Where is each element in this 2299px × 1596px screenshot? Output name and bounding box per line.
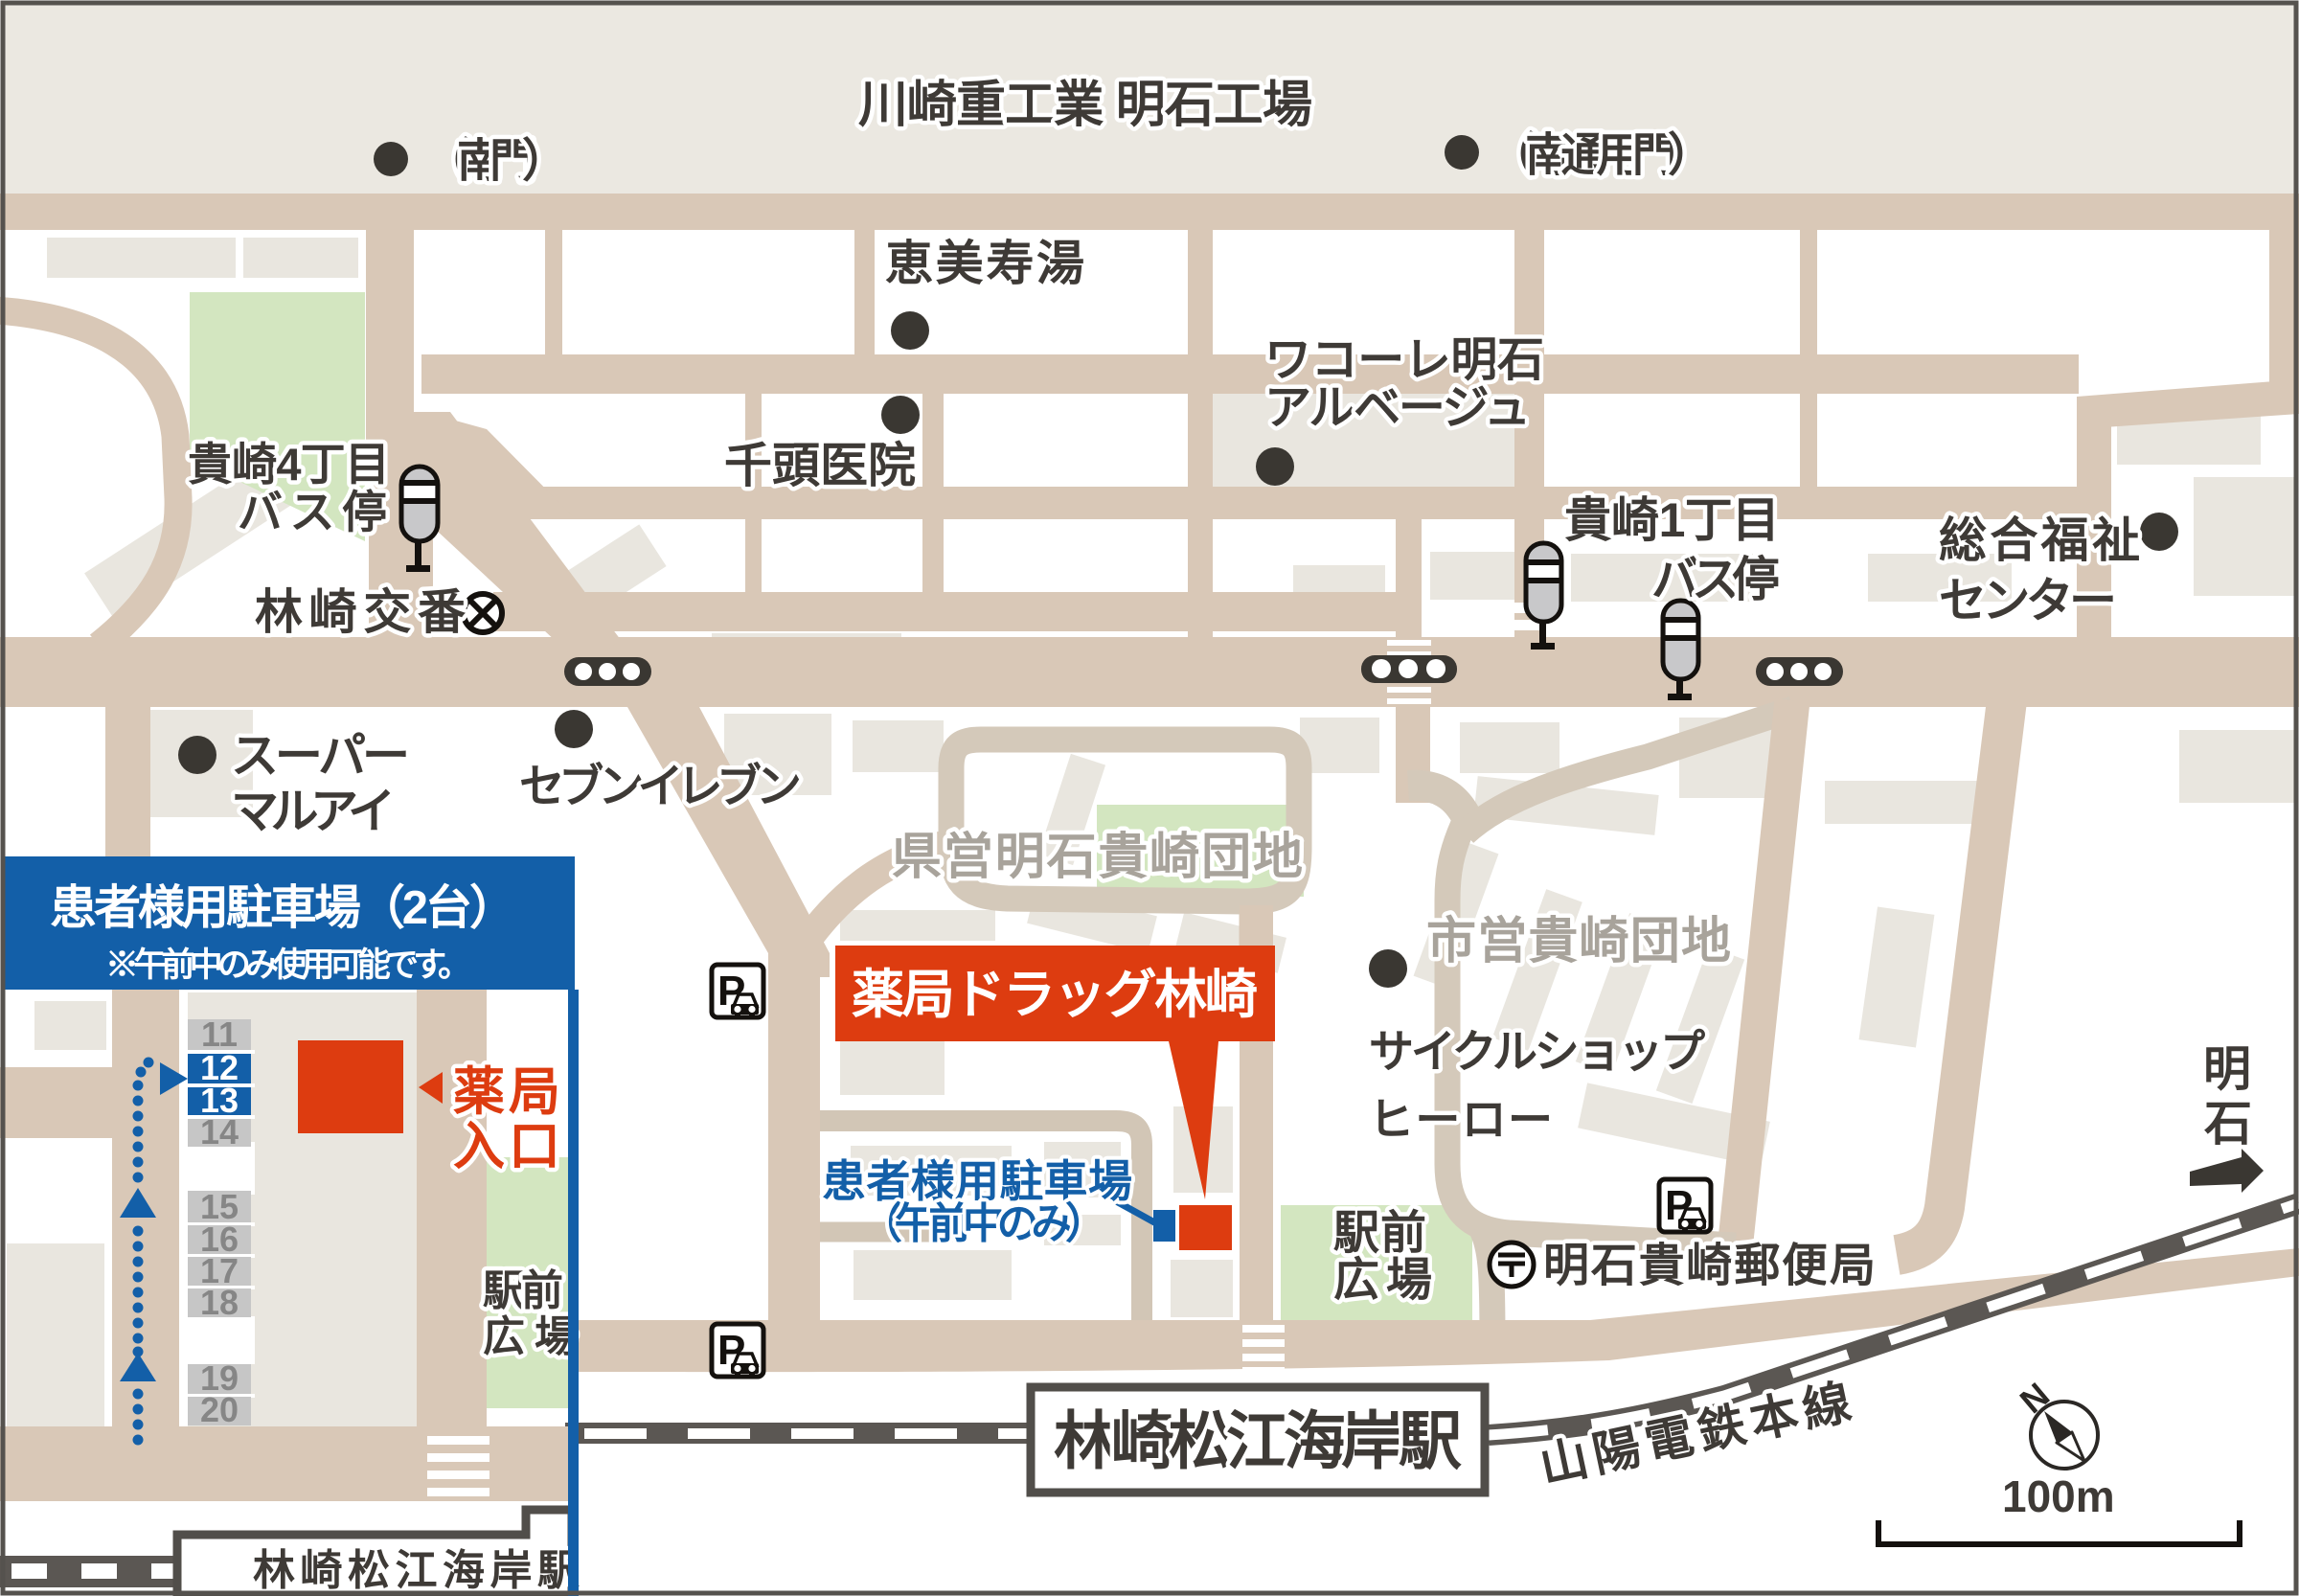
svg-text:患者様用駐車場: 患者様用駐車場 xyxy=(822,1156,1132,1206)
svg-text:（午前中のみ）: （午前中のみ） xyxy=(860,1200,1107,1247)
svg-text:駅前: 駅前 xyxy=(483,1267,563,1314)
svg-text:100m: 100m xyxy=(2002,1471,2115,1521)
svg-text:市営貴崎団地: 市営貴崎団地 xyxy=(1426,914,1731,969)
svg-text:センター: センター xyxy=(1939,574,2117,627)
svg-text:マルアイ: マルアイ xyxy=(231,785,396,838)
svg-text:バス停: バス停 xyxy=(238,487,387,537)
svg-text:林崎松江海岸駅: 林崎松江海岸駅 xyxy=(253,1547,580,1594)
svg-text:（南通用門）: （南通用門） xyxy=(1490,130,1714,181)
svg-text:ワコーレ明石: ワコーレ明石 xyxy=(1264,334,1544,386)
svg-text:ヒーロー: ヒーロー xyxy=(1369,1094,1553,1145)
svg-text:明石貴崎郵便局: 明石貴崎郵便局 xyxy=(1543,1241,1876,1291)
svg-text:患者様用駐車場（2台）: 患者様用駐車場（2台） xyxy=(50,882,516,934)
svg-text:薬局ドラッグ林崎: 薬局ドラッグ林崎 xyxy=(852,965,1258,1024)
svg-text:県営明石貴崎団地: 県営明石貴崎団地 xyxy=(892,830,1303,885)
svg-text:セブンイレブン: セブンイレブン xyxy=(519,761,802,812)
svg-text:千頭医院: 千頭医院 xyxy=(724,439,916,492)
svg-text:貴崎1丁目: 貴崎1丁目 xyxy=(1564,493,1780,547)
svg-text:スーパー: スーパー xyxy=(231,729,410,783)
svg-text:アルベージュ: アルベージュ xyxy=(1264,382,1531,434)
svg-text:20: 20 xyxy=(200,1390,239,1429)
svg-text:18: 18 xyxy=(200,1283,239,1322)
svg-text:貴崎4丁目: 貴崎4丁目 xyxy=(188,439,390,490)
svg-text:川崎重工業 明石工場: 川崎重工業 明石工場 xyxy=(858,78,1312,133)
svg-text:明: 明 xyxy=(2203,1042,2251,1096)
svg-text:（南門）: （南門） xyxy=(424,136,568,187)
svg-text:サイクルショップ: サイクルショップ xyxy=(1369,1026,1705,1077)
svg-text:駅前: 駅前 xyxy=(1333,1208,1426,1259)
svg-text:石: 石 xyxy=(2204,1097,2252,1151)
svg-text:14: 14 xyxy=(200,1112,239,1151)
svg-text:※午前中のみ使用可能です。: ※午前中のみ使用可能です。 xyxy=(105,946,471,984)
svg-text:バス停: バス停 xyxy=(1651,553,1780,606)
svg-text:林崎松江海岸駅: 林崎松江海岸駅 xyxy=(1054,1405,1462,1476)
